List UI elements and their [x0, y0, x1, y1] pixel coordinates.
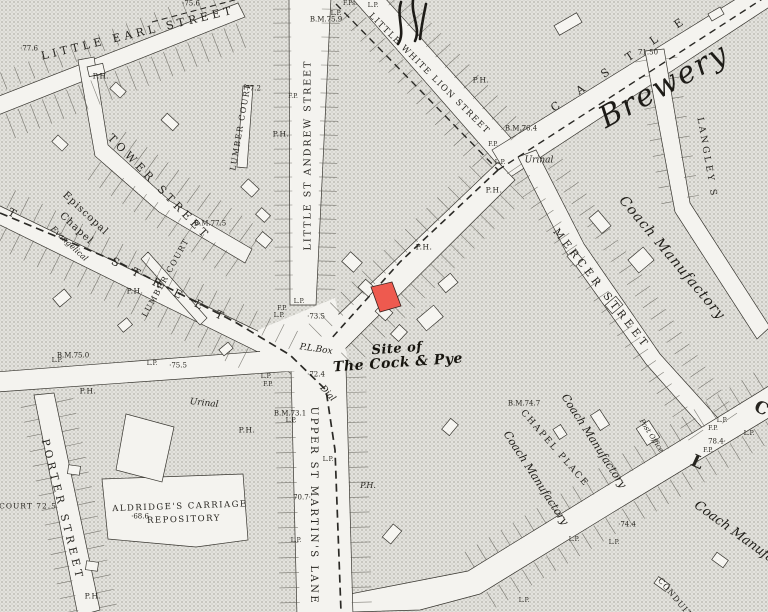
map-label: Urinal — [189, 398, 219, 410]
map-label: L.P. — [274, 313, 285, 319]
map-label: F.P. — [703, 448, 713, 454]
map-label: Coach Manufactory — [560, 392, 629, 490]
map-label: The Cock & Pye — [333, 351, 464, 374]
map-label: LITTLE EARL STREET — [40, 4, 236, 61]
map-label: B.M.77.5 — [194, 221, 226, 228]
map-label: L.P. — [368, 3, 379, 9]
map-label: P.H. — [127, 287, 144, 295]
map-label: L.P. — [147, 361, 158, 367]
map-label: F.P. — [708, 426, 718, 432]
map-label: P.H. — [239, 426, 256, 434]
map-label: P.H. — [360, 482, 376, 490]
map-label: Coach Manufactory — [692, 499, 768, 586]
map-label: P.L.Box — [299, 343, 333, 357]
map-label: ·77.2 — [243, 86, 261, 93]
map-label: P.H. — [80, 387, 97, 395]
map-label: Post Office — [638, 418, 665, 454]
map-label: L.P. — [323, 457, 334, 463]
map-label: LITTLE ST ANDREW STREET — [303, 60, 313, 251]
map-label: L.P. — [291, 538, 302, 544]
map-label: P.H. — [416, 243, 433, 251]
map-label: ·77.6 — [20, 46, 38, 53]
map-label: 71.50 — [638, 50, 658, 57]
map-label: ·75.5 — [169, 363, 187, 370]
map-label: P.H. — [85, 592, 102, 600]
map-label: COURT 72.5 — [0, 502, 57, 510]
map-label: L.P. — [286, 418, 297, 424]
map-label: P.H. — [486, 186, 503, 194]
map-label: F.P. — [288, 94, 298, 100]
map-label: ·73.5 — [307, 314, 325, 321]
map-label: Coach Manufactory — [502, 429, 571, 527]
map-label: T — [6, 206, 18, 219]
map-label: Urinal — [525, 157, 554, 166]
map-label: C — [751, 398, 768, 419]
map-label: F.P. — [488, 142, 498, 148]
map-label: ·68.6 — [131, 514, 149, 521]
map-label: Brewery — [594, 38, 734, 134]
map-label: ·72.4 — [307, 372, 325, 379]
map-label: B.M.76.4 — [505, 126, 537, 133]
map-label: Dial — [318, 384, 337, 404]
map-label: ·74.4 — [618, 522, 636, 529]
map-label: L.P. — [294, 299, 305, 305]
map-label: 70.7· — [293, 495, 311, 502]
map-label: B.M.74.7 — [508, 401, 540, 408]
map-label: MERCER STREET — [551, 227, 651, 351]
map-label: B.M.75.9 — [310, 17, 342, 24]
map-label: LUMBER COURT — [229, 83, 252, 172]
map-label: Coach Manufactory — [616, 194, 727, 323]
map-label: LITTLE WHITE LION STREET — [367, 12, 491, 136]
map-label: P.H. — [93, 72, 110, 80]
map-label: L.P. — [52, 358, 63, 364]
map-label: L.P. — [519, 598, 530, 604]
map-label: L.P. — [331, 11, 342, 17]
map-label: UPPER ST MARTIN'S LANE — [308, 407, 318, 605]
map-label: 78.4· — [708, 439, 726, 446]
map-label: L.P. — [569, 537, 580, 543]
map-label: L — [688, 453, 706, 473]
map-label: L.P. — [609, 540, 620, 546]
map-label: F.Ps. — [343, 1, 357, 7]
map-label: P.H. — [473, 76, 490, 84]
map-label: L.P. — [495, 160, 506, 166]
map-label: L.P. — [744, 431, 755, 437]
map-labels-layer: LITTLE EARL STREETTOWER STREETLITTLE ST … — [0, 0, 768, 612]
map-label: ·75.6 — [182, 1, 200, 8]
map-label: CONDUIT C — [656, 577, 700, 612]
map-label: F.P. — [263, 382, 273, 388]
map-label: REPOSITORY — [147, 514, 221, 525]
map-label: P.H. — [273, 130, 290, 138]
map-canvas: LITTLE EARL STREETTOWER STREETLITTLE ST … — [0, 0, 768, 612]
map-label: L.P. — [717, 418, 728, 424]
map-label: L.P. — [261, 374, 272, 380]
map-label: LANGLEY S — [694, 117, 717, 199]
